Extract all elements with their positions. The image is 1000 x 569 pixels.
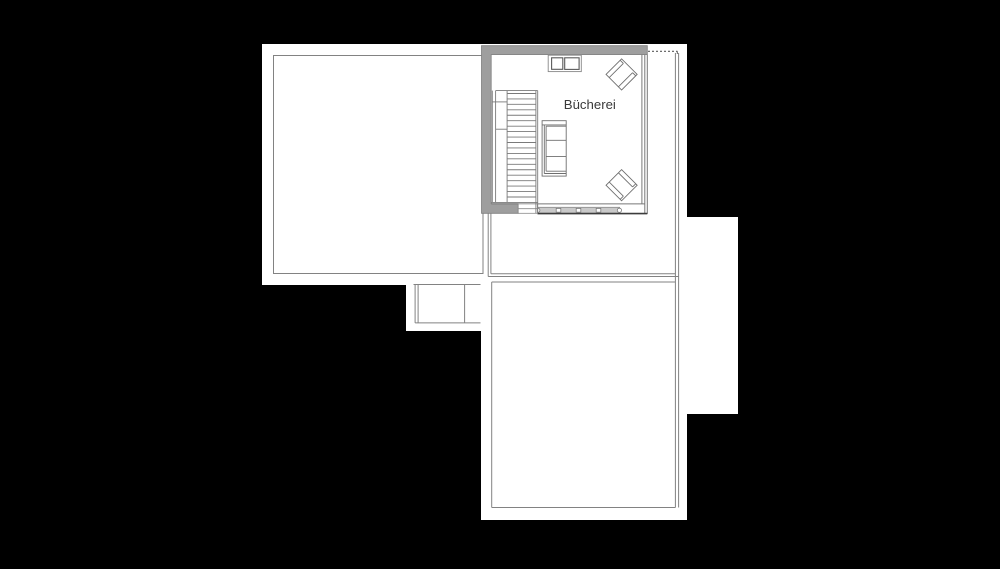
svg-text:Bücherei: Bücherei: [564, 97, 616, 112]
